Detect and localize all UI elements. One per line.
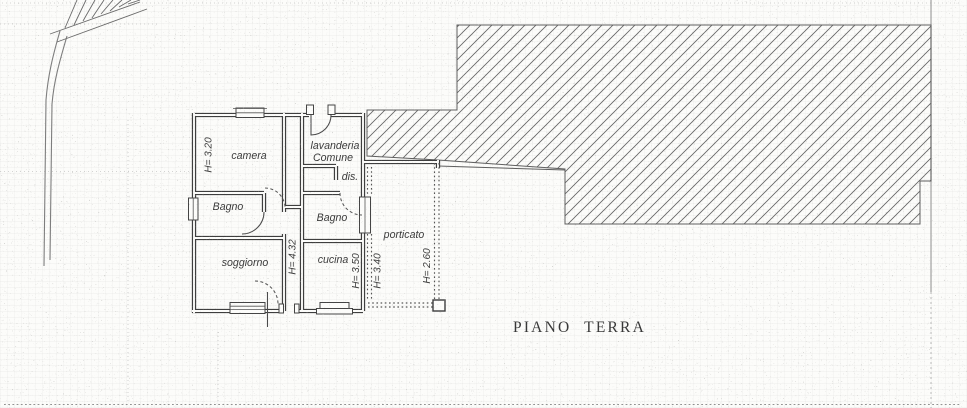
- scan-speckle-overlay: [0, 0, 967, 408]
- floor-plan-canvas: camera lavanderia Comune dis. Bagno Bagn…: [0, 0, 967, 408]
- scanned-floor-plan-page: camera lavanderia Comune dis. Bagno Bagn…: [0, 0, 967, 408]
